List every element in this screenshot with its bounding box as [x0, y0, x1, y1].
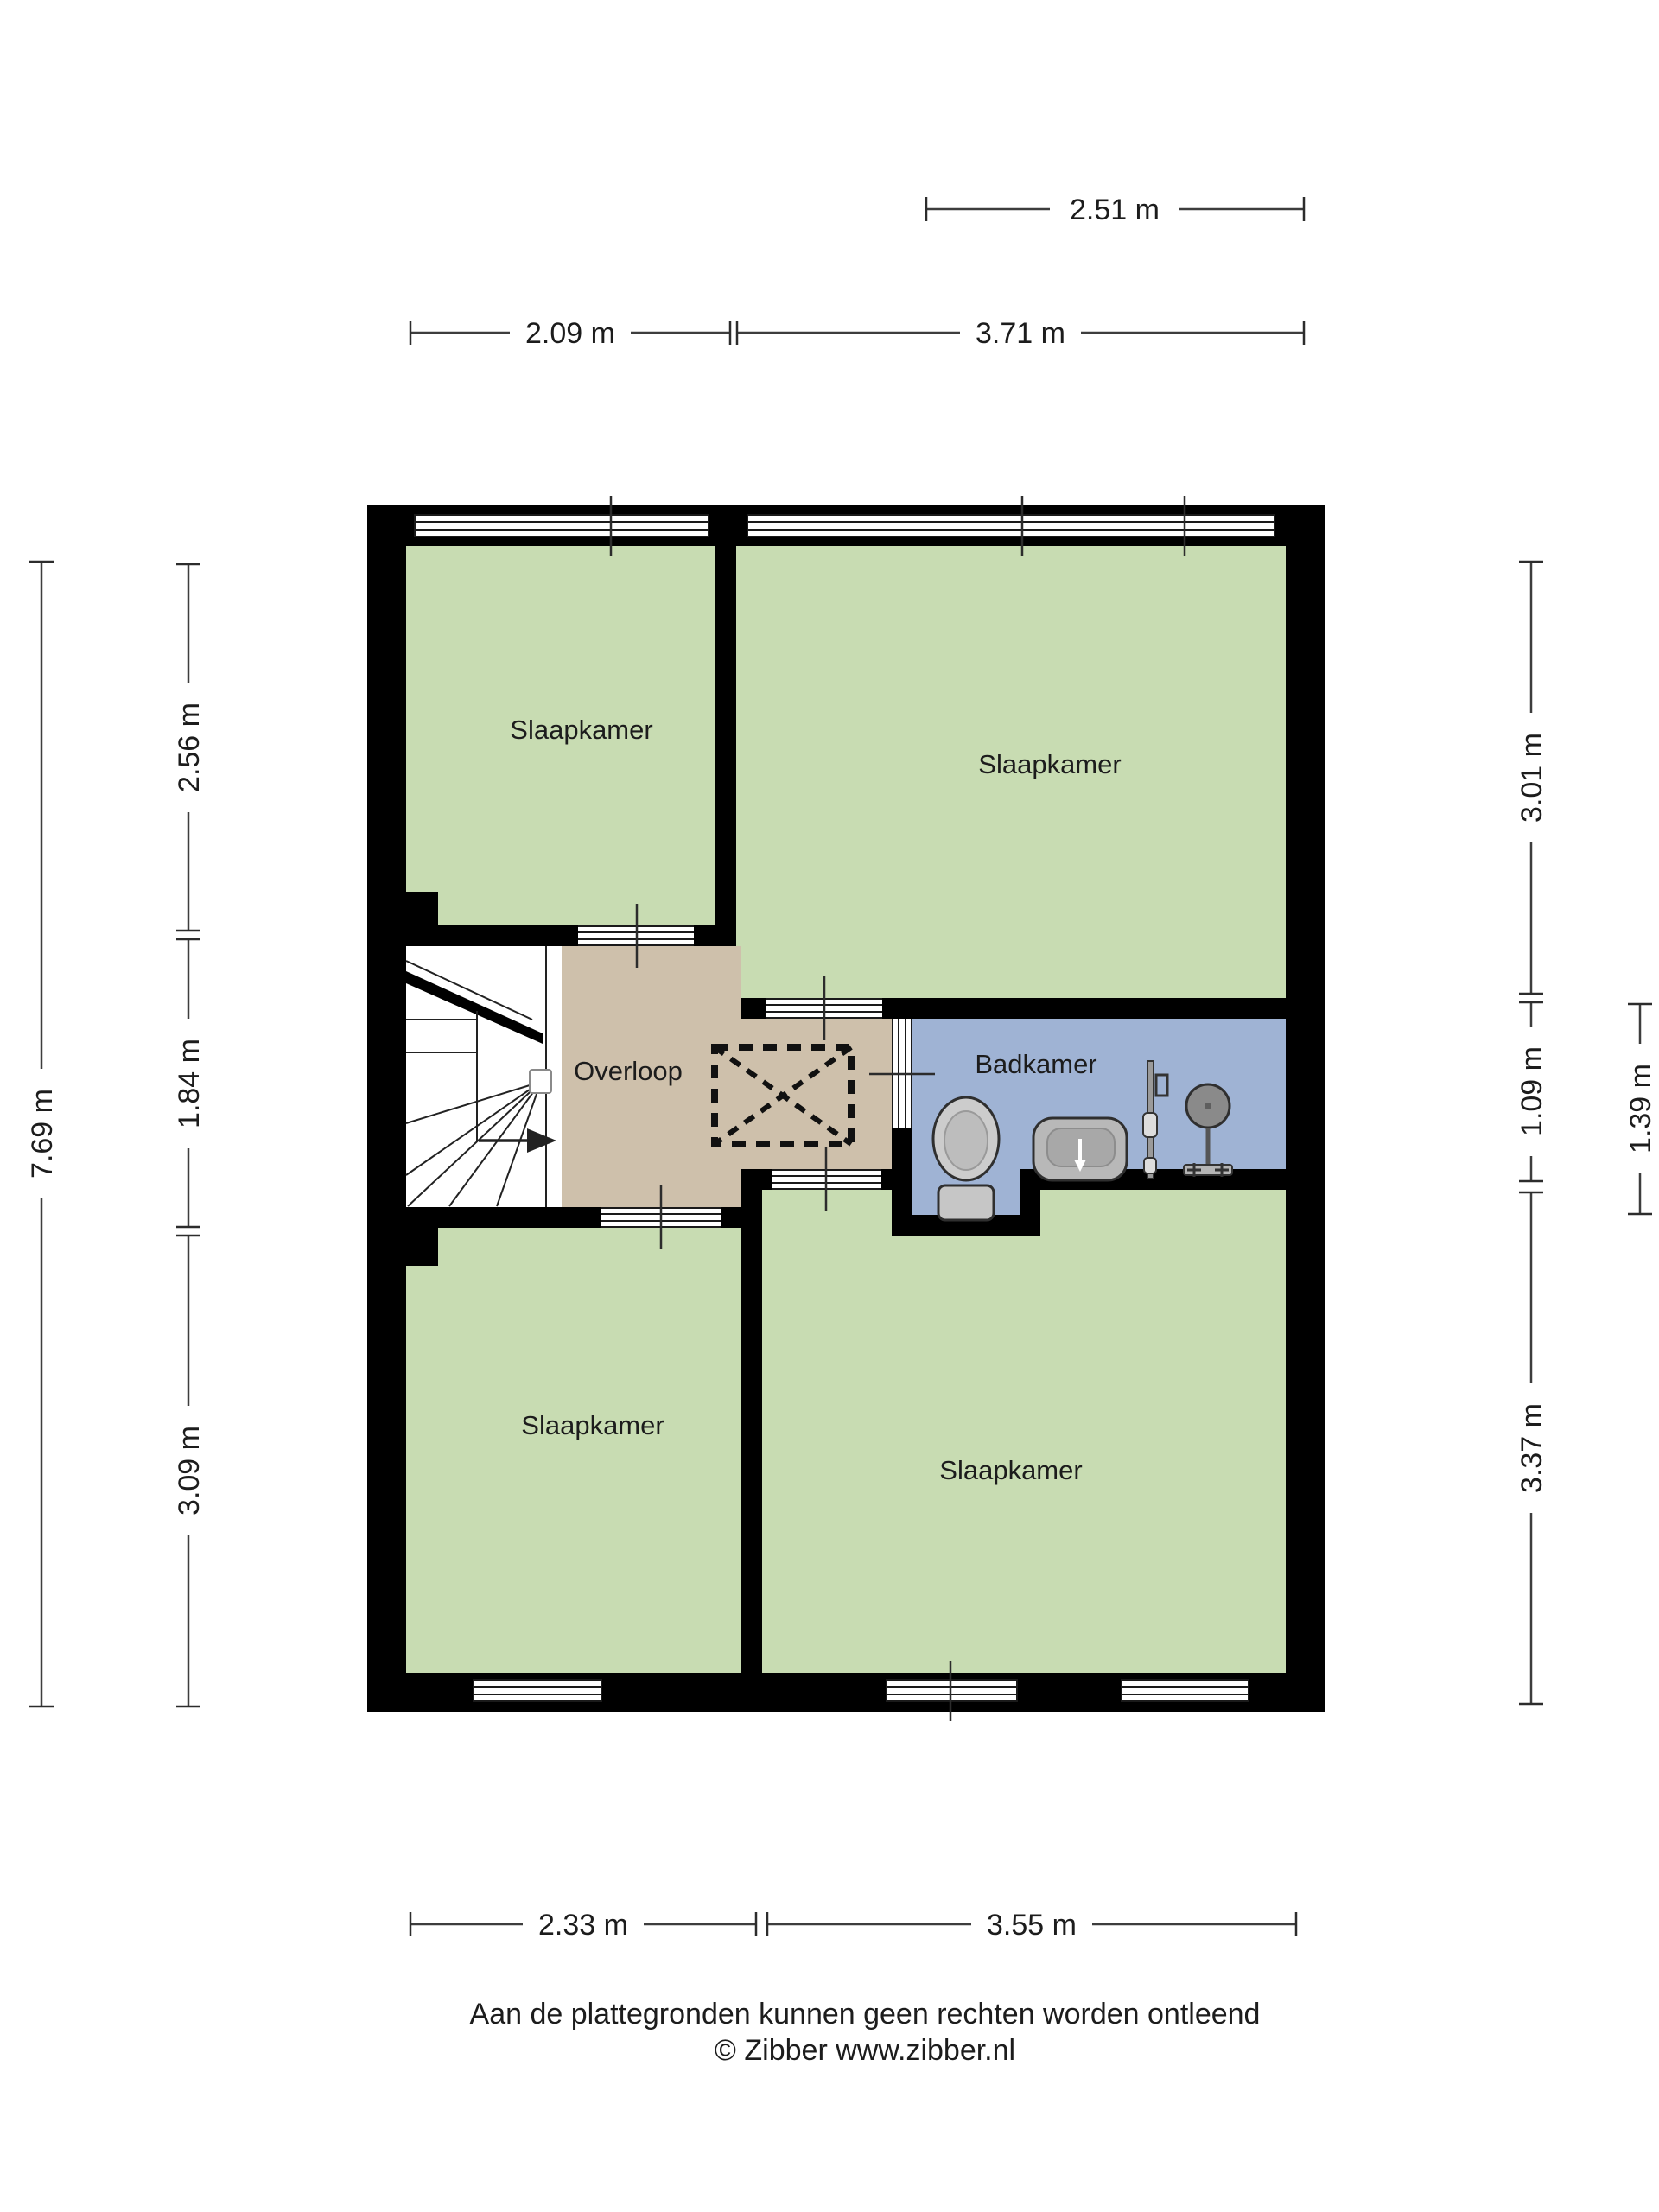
- room-label-slaapkamer-br: Slaapkamer: [939, 1455, 1082, 1485]
- room-label-slaapkamer-bl: Slaapkamer: [521, 1410, 664, 1440]
- room-label-slaapkamer-tr: Slaapkamer: [978, 749, 1121, 779]
- svg-text:7.69 m: 7.69 m: [26, 1089, 59, 1179]
- svg-text:1.39 m: 1.39 m: [1624, 1064, 1657, 1154]
- svg-text:3.37 m: 3.37 m: [1516, 1403, 1548, 1493]
- footer-disclaimer: Aan de plattegronden kunnen geen rechten…: [470, 1998, 1261, 2031]
- floorplan-page: Slaapkamer Slaapkamer Overloop Badkamer …: [0, 0, 1659, 2212]
- window-bottom-right: [1122, 1680, 1249, 1701]
- room-slaapkamer-br-floor: [762, 1190, 1286, 1673]
- svg-text:2.56 m: 2.56 m: [173, 702, 206, 792]
- stairs-newel-post: [530, 1070, 551, 1093]
- svg-text:3.09 m: 3.09 m: [173, 1426, 206, 1516]
- wall-notch-tl: [406, 892, 438, 925]
- footer-copyright: © Zibber www.zibber.nl: [715, 2034, 1015, 2067]
- room-label-badkamer: Badkamer: [975, 1049, 1096, 1079]
- svg-text:3.01 m: 3.01 m: [1516, 733, 1548, 823]
- svg-text:2.09 m: 2.09 m: [525, 317, 615, 350]
- svg-text:2.33 m: 2.33 m: [538, 1909, 628, 1942]
- svg-text:1.09 m: 1.09 m: [1516, 1046, 1548, 1136]
- room-label-slaapkamer-tl: Slaapkamer: [510, 715, 652, 745]
- room-slaapkamer-bl-floor: [406, 1228, 741, 1673]
- toilet-icon: [933, 1097, 999, 1220]
- wall-notch-bl: [406, 1228, 438, 1266]
- svg-text:1.84 m: 1.84 m: [173, 1039, 206, 1128]
- room-label-overloop: Overloop: [574, 1056, 683, 1086]
- floorplan-svg: Slaapkamer Slaapkamer Overloop Badkamer …: [0, 0, 1659, 2212]
- svg-text:2.51 m: 2.51 m: [1070, 194, 1160, 226]
- svg-text:3.55 m: 3.55 m: [987, 1909, 1077, 1942]
- svg-text:3.71 m: 3.71 m: [976, 317, 1065, 350]
- washbasin-icon: [1033, 1118, 1127, 1180]
- window-bottom-left: [474, 1680, 601, 1701]
